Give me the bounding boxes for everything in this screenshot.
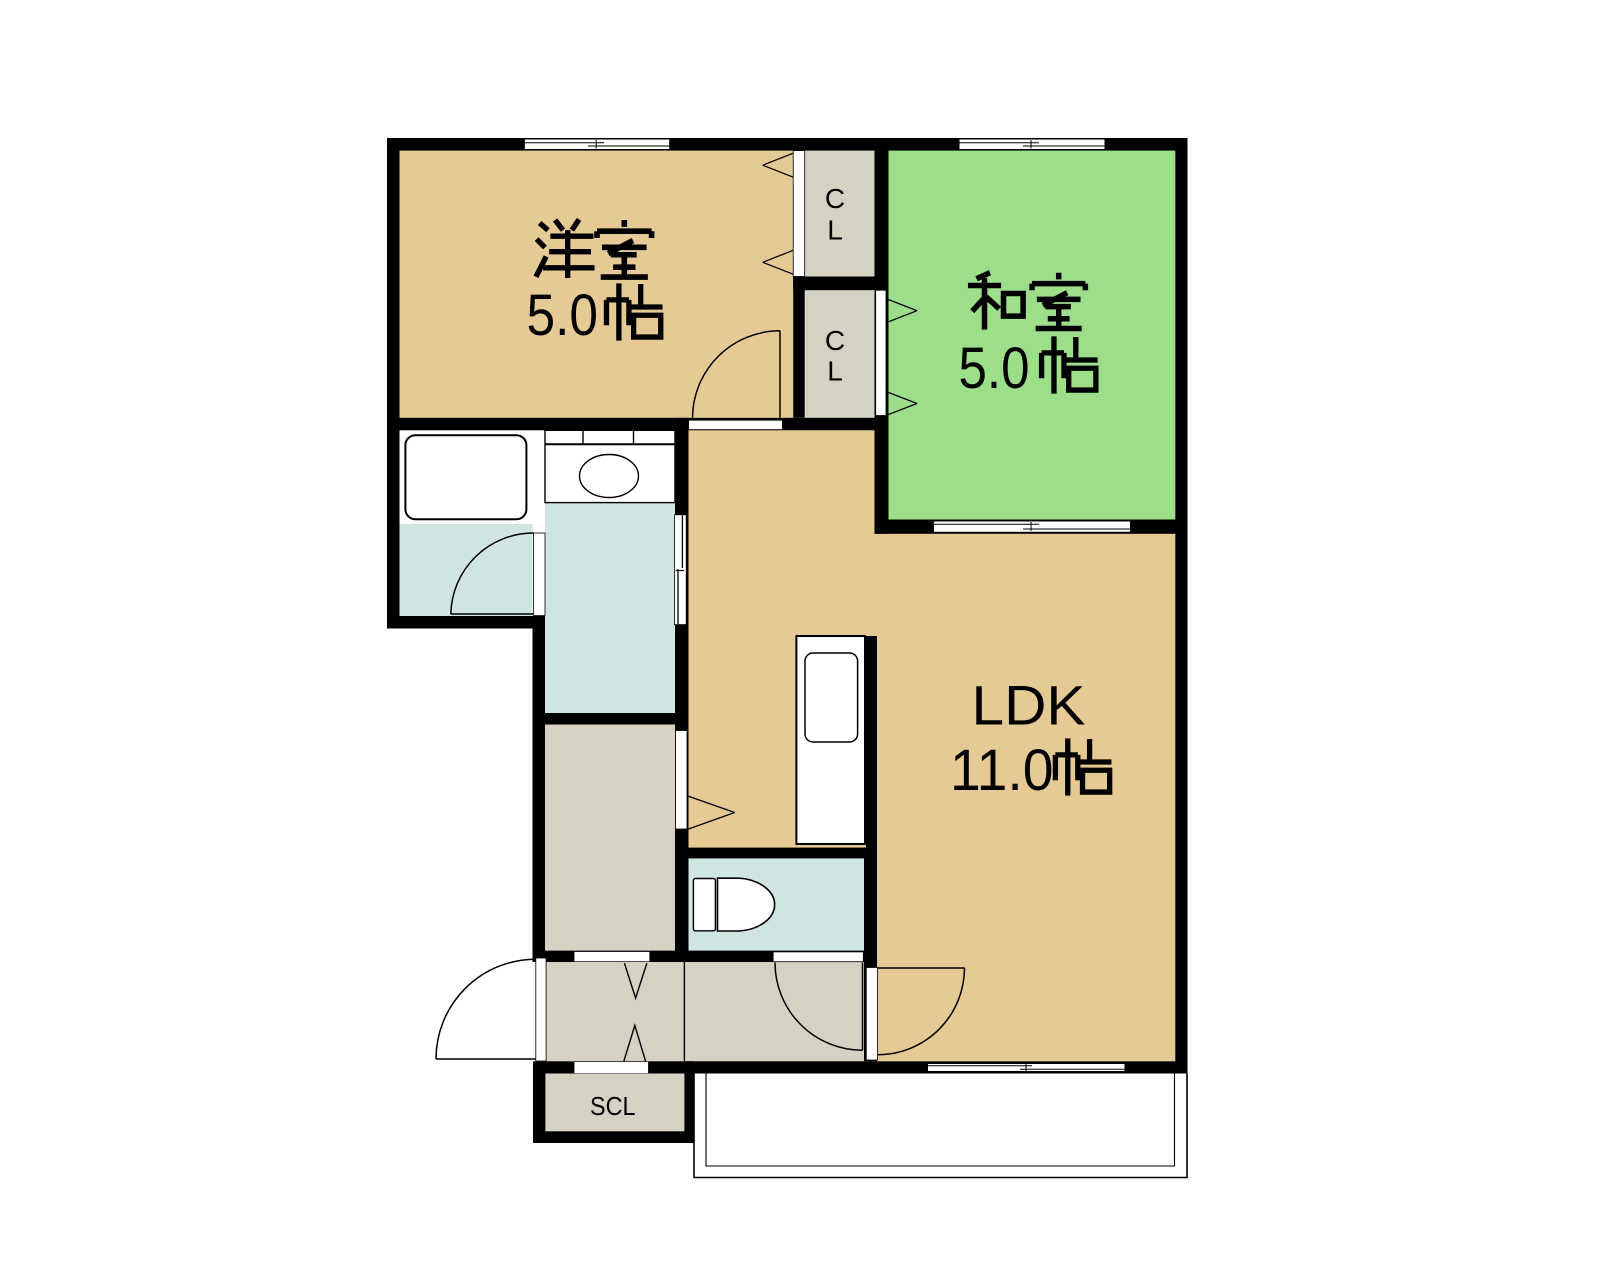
svg-text:SCL: SCL (590, 1091, 636, 1121)
svg-text:5.0: 5.0 (959, 336, 1030, 401)
svg-text:L: L (827, 356, 843, 387)
svg-text:5.0: 5.0 (527, 283, 599, 348)
svg-text:LDK: LDK (972, 673, 1086, 736)
svg-text:L: L (827, 215, 843, 246)
svg-text:11.0: 11.0 (950, 738, 1054, 803)
svg-text:C: C (825, 325, 845, 356)
svg-text:C: C (825, 183, 845, 214)
